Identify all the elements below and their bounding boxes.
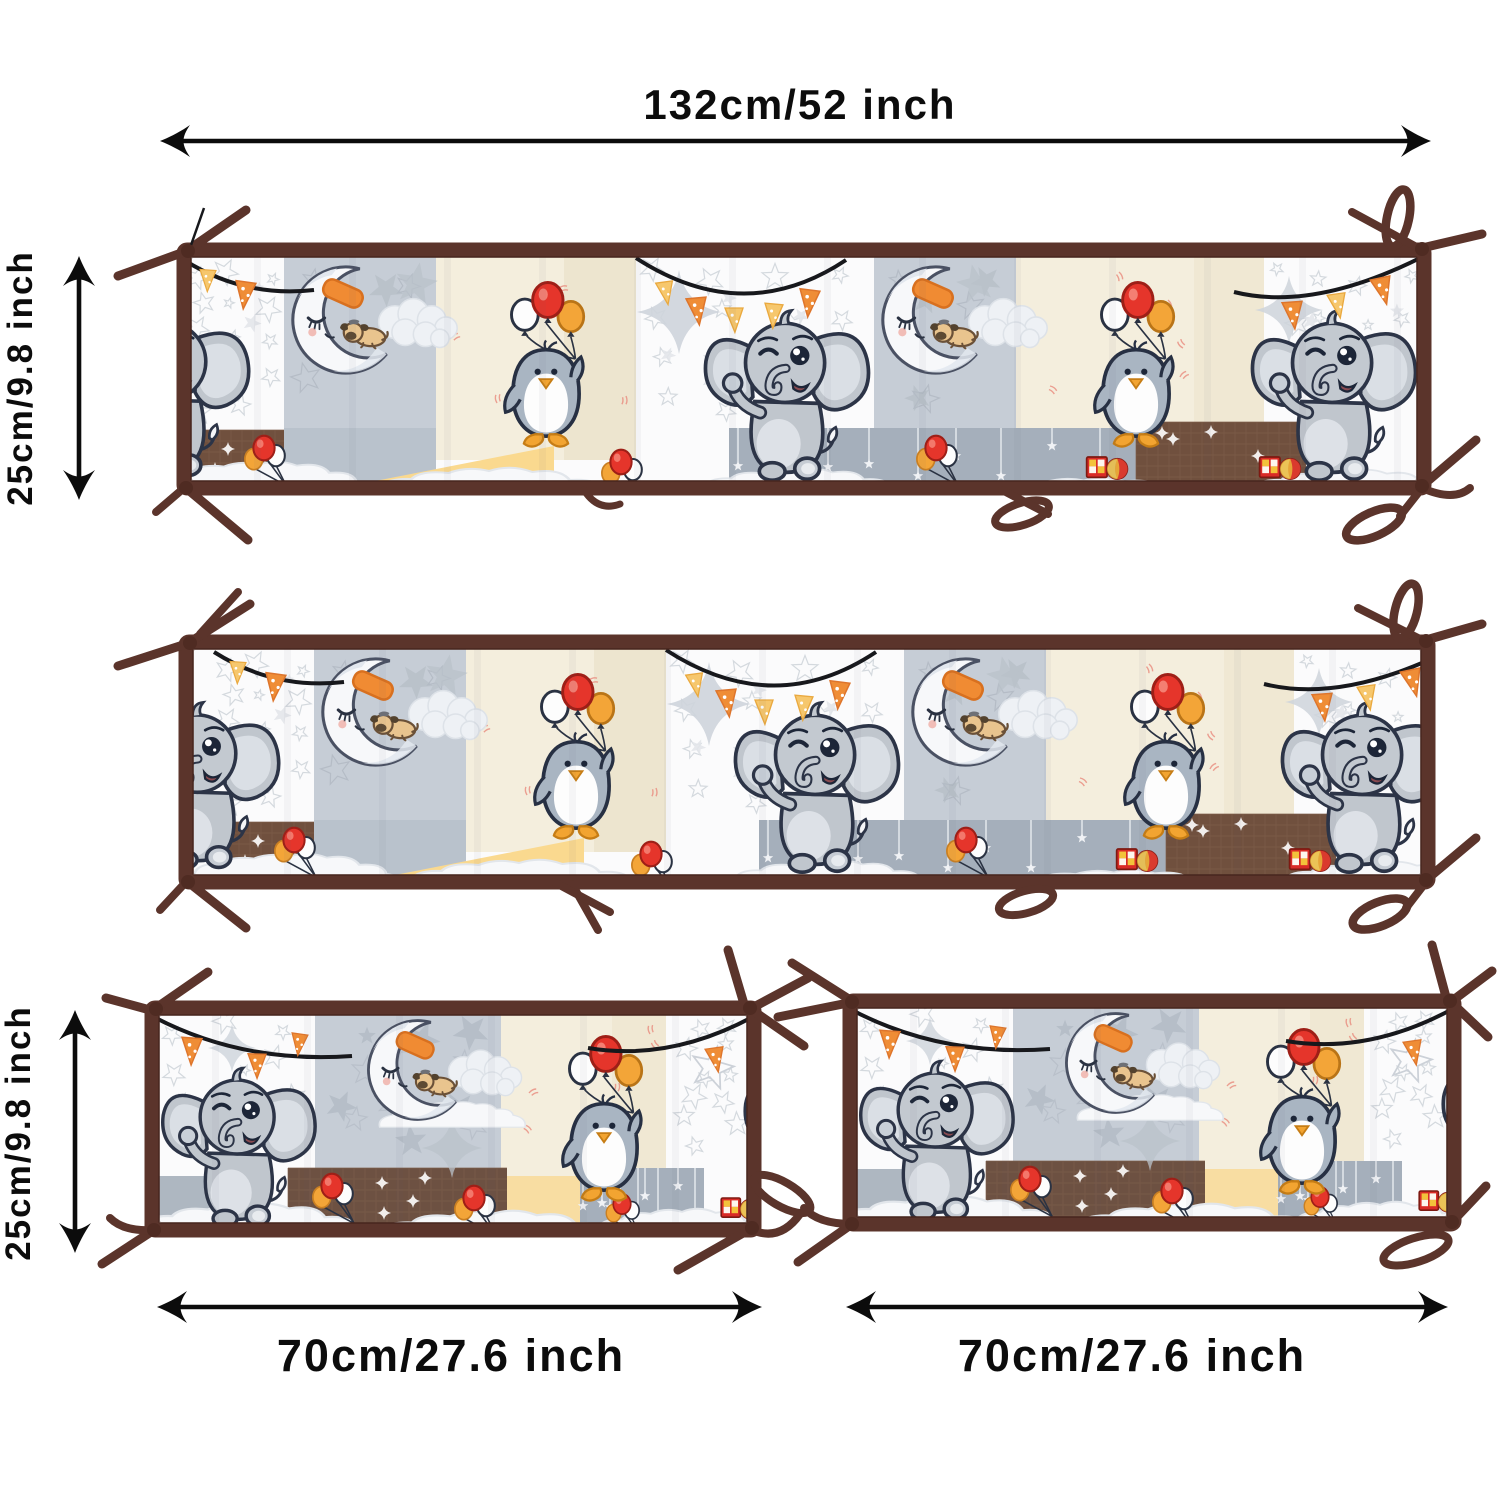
svg-text:70cm/27.6 inch: 70cm/27.6 inch: [958, 1330, 1306, 1381]
svg-text:25cm/9.8 inch: 25cm/9.8 inch: [1, 250, 40, 506]
svg-text:132cm/52 inch: 132cm/52 inch: [643, 81, 956, 128]
svg-text:70cm/27.6 inch: 70cm/27.6 inch: [277, 1330, 625, 1381]
svg-text:25cm/9.8 inch: 25cm/9.8 inch: [0, 1005, 38, 1261]
